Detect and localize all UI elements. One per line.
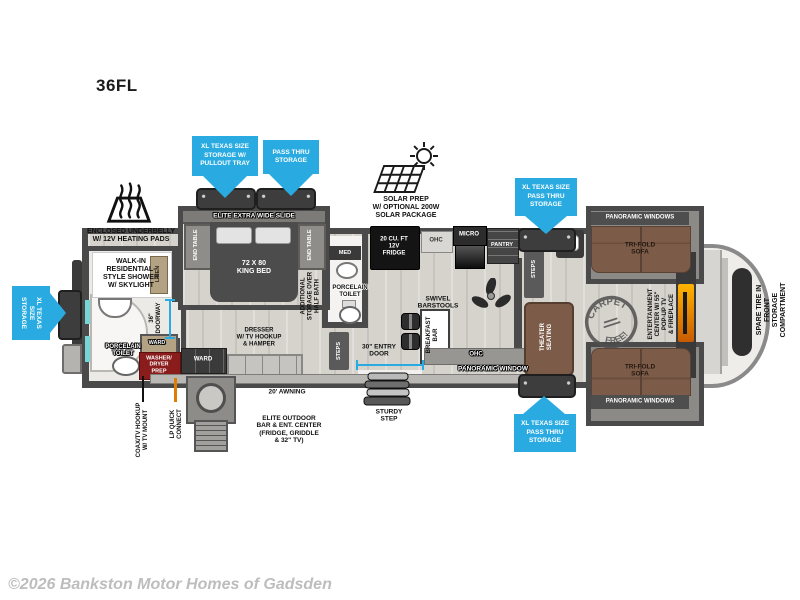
bed-pillow-right xyxy=(255,227,291,244)
doorway-measure-cap-bottom xyxy=(165,337,175,339)
ceiling-fan-icon xyxy=(470,278,512,319)
rear-water-heater xyxy=(62,344,82,374)
panoramic-window-label: PANORAMIC WINDOW xyxy=(458,365,528,372)
tri-fold-sofa-bottom-label: TRI-FOLD SOFA xyxy=(625,364,655,379)
storage-bin-bottom-right xyxy=(518,374,576,398)
callout-xl-pass-thru-top: XL TEXAS SIZE PASS THRU STORAGE xyxy=(515,178,577,216)
wardrobe-1-label: WARD xyxy=(149,340,166,346)
med-cabinet-label: MED xyxy=(339,250,351,256)
bed-pillow-left xyxy=(216,227,252,244)
barstool-1 xyxy=(401,313,420,330)
entry-measure-line xyxy=(356,364,424,366)
front-cap-window xyxy=(732,268,752,356)
callout-pullout-tray-arrow xyxy=(203,176,247,198)
panoramic-windows-top-label: PANORAMIC WINDOWS xyxy=(606,215,675,222)
halfbath-toilet-label: PORCELAIN TOILET xyxy=(332,285,367,299)
end-table-left-label: END TABLE xyxy=(193,229,199,260)
awning-label: 20' AWNING xyxy=(268,388,305,395)
callout-pullout-tray: XL TEXAS SIZE STORAGE W/ PULLOUT TRAY xyxy=(192,136,258,176)
floorplan-canvas: 36FL ©2026 Bankston Motor Homes of Gadsd… xyxy=(0,0,800,600)
linen-label: LINEN xyxy=(155,266,161,283)
doorway-measure-line xyxy=(169,300,171,338)
coax-label: COAX/TV HOOKUP W/ TV MOUNT xyxy=(136,403,150,458)
coax-line xyxy=(142,376,144,402)
swivel-barstools-label: SWIVEL BARSTOOLS xyxy=(418,296,459,311)
outdoor-bar-label: ELITE OUTDOOR BAR & ENT. CENTER (FRIDGE,… xyxy=(256,415,321,445)
model-title: 36FL xyxy=(96,76,138,96)
outdoor-griddle xyxy=(196,383,226,413)
storage-over-halfbath-label: ADDITIONAL STORAGE OVER HALF BATH xyxy=(301,272,322,320)
entry-measure-cap-right xyxy=(422,360,424,370)
living-ohc-label: OHC xyxy=(469,352,482,359)
doorway-label: 36" DOORWAY xyxy=(149,302,163,333)
wall-halfbath-right xyxy=(362,230,368,328)
panoramic-windows-bottom-label: PANORAMIC WINDOWS xyxy=(606,399,675,406)
shower-glass-accent xyxy=(85,300,90,324)
rear-toilet-label: PORCELAIN TOILET xyxy=(105,344,140,358)
underbelly-label: ENCLOSED UNDERBELLY W/ 12V HEATING PADS xyxy=(87,228,175,244)
entry-measure-cap-left xyxy=(356,360,358,370)
callout-xl-storage-rear: XL TEXAS SIZE STORAGE xyxy=(12,286,50,340)
bedroom-slide-label: ELITE EXTRA WIDE SLIDE xyxy=(213,212,295,219)
tri-fold-sofa-top-label: TRI-FOLD SOFA xyxy=(625,242,655,257)
outdoor-fridge xyxy=(194,420,228,452)
solar-prep-label: SOLAR PREP W/ OPTIONAL 200W SOLAR PACKAG… xyxy=(373,196,440,220)
kitchen-ohc-label: OHC xyxy=(429,238,442,245)
rear-toilet xyxy=(112,356,140,376)
spare-tire-label: SPARE TIRE IN FRONT STORAGE COMPARTMENT xyxy=(756,283,788,338)
entry-steps-label: STEPS xyxy=(336,342,342,360)
front-steps-label: STEPS xyxy=(531,260,537,278)
callout-xl-storage-rear-arrow xyxy=(50,293,66,333)
breakfast-bar-label: BREAKFAST BAR xyxy=(426,317,440,354)
halfbath-sink xyxy=(336,262,358,279)
halfbath-toilet xyxy=(339,306,361,324)
shower-glass-accent-2 xyxy=(85,336,90,362)
entertainment-label: ENTERTAINMENT CENTER W/ 55" POP-UP TV & … xyxy=(648,289,676,340)
lp-connect-label: LP QUICK CONNECT xyxy=(170,409,184,439)
sturdy-step-label: STURDY STEP xyxy=(376,409,403,424)
front-cap-panel-2 xyxy=(722,258,728,366)
theater-seating-label: THEATER SEATING xyxy=(540,323,554,351)
washer-dryer-label: WASHER/ DRYER PREP xyxy=(146,356,172,375)
callout-pass-thru: PASS THRU STORAGE xyxy=(263,140,319,174)
callout-pass-thru-arrow xyxy=(269,174,313,196)
copyright-text: ©2026 Bankston Motor Homes of Gadsden xyxy=(8,576,332,594)
barstool-2 xyxy=(401,333,420,350)
callout-xl-pass-thru-bottom-arrow xyxy=(523,396,565,414)
pantry-label: PANTRY xyxy=(491,242,513,248)
microwave-label: MICRO xyxy=(459,232,479,239)
lp-connect-line xyxy=(174,378,177,402)
range-oven xyxy=(455,245,485,269)
solar-prep-icon xyxy=(366,140,446,203)
heating-pads-icon xyxy=(102,174,156,231)
entry-door-label: 30" ENTRY DOOR xyxy=(362,344,396,359)
callout-xl-pass-thru-bottom: XL TEXAS SIZE PASS THRU STORAGE xyxy=(514,414,576,452)
wardrobe-2-label: WARD xyxy=(194,357,212,364)
callout-xl-storage-rear-text: XL TEXAS SIZE STORAGE xyxy=(20,297,42,329)
king-bed-label: 72 X 80 KING BED xyxy=(237,260,271,276)
popup-tv-slot xyxy=(683,292,687,334)
sturdy-step-graphic xyxy=(362,372,412,413)
doorway-measure-cap-top xyxy=(165,299,175,301)
shower-label: WALK-IN RESIDENTIAL- STYLE SHOWER W/ SKY… xyxy=(103,258,159,290)
dresser-label: DRESSER W/ TV HOOKUP & HAMPER xyxy=(237,328,282,349)
fridge-label: 20 CU. FT 12V FRIDGE xyxy=(380,237,408,258)
end-table-right-label: END TABLE xyxy=(307,229,313,260)
callout-xl-pass-thru-top-arrow xyxy=(525,216,567,234)
